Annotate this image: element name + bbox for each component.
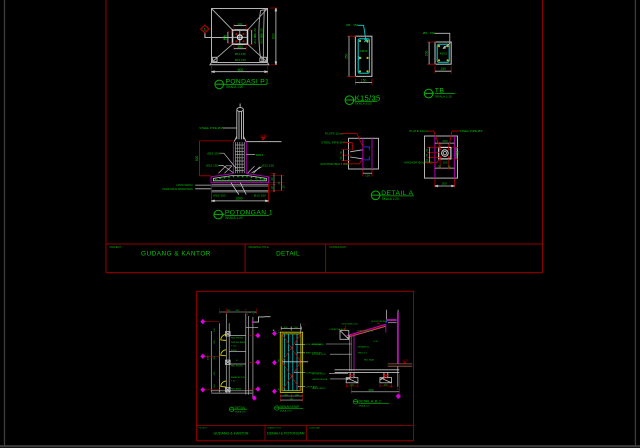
svg-text:350: 350: [345, 53, 349, 59]
svg-text:LISTPLANK 2/20: LISTPLANK 2/20: [341, 322, 358, 325]
svg-text:DRAWING TITLE: DRAWING TITLE: [267, 427, 282, 430]
svg-text:150: 150: [361, 78, 367, 82]
svg-text:200: 200: [222, 35, 226, 40]
svg-text:DETAIL: DETAIL: [276, 251, 300, 258]
svg-text:600: 600: [195, 156, 199, 162]
svg-text:NOK GORDING: NOK GORDING: [371, 321, 387, 323]
svg-text:3000: 3000: [368, 389, 374, 392]
svg-text:200: 200: [442, 181, 447, 185]
svg-text:SKALA 1:20: SKALA 1:20: [235, 410, 247, 413]
svg-text:CONSULTANT: CONSULTANT: [308, 427, 321, 430]
svg-text:PAS. PROFIL: PAS. PROFIL: [231, 336, 244, 339]
svg-text:8Ø16: 8Ø16: [256, 153, 264, 157]
svg-text:PAS. PROFIL: PAS. PROFIL: [231, 365, 244, 368]
svg-text:200: 200: [442, 139, 447, 143]
svg-text:PAS. BATA: PAS. BATA: [364, 358, 375, 361]
svg-text:PAS. BATA: PAS. BATA: [231, 388, 242, 391]
svg-text:PLATE 12mm: PLATE 12mm: [409, 129, 428, 133]
svg-text:Ø16-150: Ø16-150: [207, 151, 219, 155]
svg-text:STEEL PIPE Ø4": STEEL PIPE Ø4": [321, 140, 345, 144]
svg-text:150: 150: [457, 151, 460, 156]
svg-text:350: 350: [237, 45, 243, 49]
svg-text:Ø12-150: Ø12-150: [254, 34, 257, 44]
svg-text:SKALA 1:20: SKALA 1:20: [225, 216, 242, 220]
svg-text:4Ø12: 4Ø12: [440, 51, 447, 55]
svg-text:STEEL PIPE Ø4": STEEL PIPE Ø4": [199, 126, 223, 130]
svg-text:Ø12-150: Ø12-150: [262, 164, 274, 168]
svg-text:GUDANG & KANTOR: GUDANG & KANTOR: [213, 432, 248, 436]
svg-text:6Ø16: 6Ø16: [360, 49, 368, 53]
svg-text:SPESI 1:3: SPESI 1:3: [358, 352, 368, 354]
svg-text:RING BALK: RING BALK: [312, 343, 324, 346]
svg-text:+0.20: +0.20: [373, 341, 379, 343]
svg-text:Ø12-150: Ø12-150: [206, 164, 218, 168]
svg-text:Ø16-150: Ø16-150: [235, 58, 246, 62]
svg-text:600: 600: [238, 68, 244, 72]
svg-text:100: 100: [365, 174, 370, 178]
svg-text:Ø12-150: Ø12-150: [235, 52, 246, 56]
svg-text:Ø8 - 150: Ø8 - 150: [346, 23, 358, 27]
svg-text:Ø16-150: Ø16-150: [213, 193, 225, 197]
svg-text:LANTAI KERJA: LANTAI KERJA: [176, 184, 193, 187]
svg-text:DENAH ATAP: DENAH ATAP: [280, 405, 300, 409]
svg-text:DETAIL A ,B ,C: DETAIL A ,B ,C: [358, 400, 382, 404]
svg-text:SKALA 1:20: SKALA 1:20: [359, 404, 371, 407]
svg-text:SKALA 1:10: SKALA 1:10: [435, 95, 452, 99]
svg-text:600: 600: [272, 33, 276, 39]
svg-text:200: 200: [238, 22, 243, 26]
svg-text:STEEL PIPE Ø4": STEEL PIPE Ø4": [459, 129, 483, 133]
svg-text:GUDANG & KANTOR: GUDANG & KANTOR: [141, 251, 211, 258]
svg-text:SKALA 1:100: SKALA 1:100: [280, 409, 293, 412]
svg-text:DRAWING TITLE: DRAWING TITLE: [249, 245, 269, 249]
svg-text:DENAH & POTONGAN: DENAH & POTONGAN: [267, 432, 305, 436]
svg-text:T. 300: T. 300: [231, 346, 237, 348]
svg-text:SLOOF 15/20: SLOOF 15/20: [312, 374, 326, 376]
svg-text:PROJECT: PROJECT: [199, 428, 208, 430]
svg-text:1500: 1500: [207, 355, 209, 361]
svg-text:C: C: [278, 331, 280, 334]
svg-text:1600: 1600: [235, 197, 242, 201]
svg-text:LANTAI KERJA: LANTAI KERJA: [312, 378, 328, 381]
svg-text:DINDING BATA: DINDING BATA: [231, 341, 246, 344]
svg-text:100: 100: [443, 161, 448, 165]
svg-text:RABAT BETON: RABAT BETON: [231, 376, 245, 379]
svg-text:Ø12-150: Ø12-150: [254, 193, 266, 197]
svg-text:KERAMIK 40: KERAMIK 40: [358, 346, 371, 349]
svg-text:DETAIL: DETAIL: [235, 406, 246, 410]
svg-text:PLATE 12mm: PLATE 12mm: [325, 131, 344, 135]
svg-text:SKALA 1:20: SKALA 1:20: [226, 85, 243, 89]
svg-text:SKALA 1:10: SKALA 1:10: [355, 102, 372, 106]
svg-text:200: 200: [425, 51, 429, 57]
svg-text:150: 150: [440, 67, 446, 71]
svg-text:SKALA 1:20: SKALA 1:20: [382, 197, 399, 201]
svg-text:PASIR URUG DIPADATKAN: PASIR URUG DIPADATKAN: [163, 188, 194, 191]
svg-text:Ø16-150: Ø16-150: [260, 34, 263, 44]
svg-text:GORDING C100: GORDING C100: [357, 330, 374, 332]
svg-text:CONSULTANT: CONSULTANT: [329, 245, 347, 249]
svg-text:KOLOM 15/15: KOLOM 15/15: [312, 354, 327, 356]
svg-text:PASIR URUG: PASIR URUG: [312, 387, 326, 390]
svg-text:SPESI: SPESI: [231, 350, 237, 352]
svg-text:PROJECT: PROJECT: [110, 245, 123, 249]
svg-text:Ø8 - 150: Ø8 - 150: [423, 31, 435, 35]
